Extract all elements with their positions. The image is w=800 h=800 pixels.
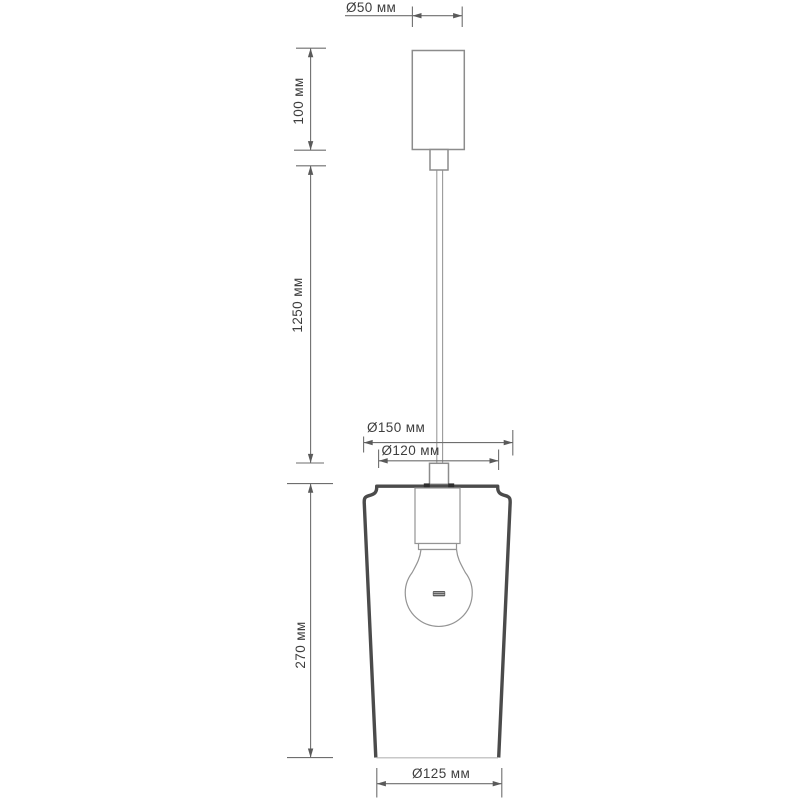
canopy-neck: [430, 150, 448, 171]
label-shade-bottom-diameter: Ø125 мм: [412, 767, 470, 781]
cable-connector: [430, 463, 449, 484]
arrow-left: [377, 781, 386, 786]
arrow-right: [490, 458, 499, 463]
drawing-geometry: [0, 0, 800, 800]
filament-mark: [433, 591, 445, 596]
arrow-right: [453, 13, 462, 18]
arrow-left: [379, 458, 388, 463]
arrow-left: [412, 13, 421, 18]
lamp-socket: [415, 488, 460, 544]
label-shade-height: 270 мм: [294, 621, 308, 668]
ceiling-canopy-outline: [412, 51, 464, 150]
arrow-right: [493, 781, 502, 786]
pendant-lamp-dimension-diagram: Ø50 мм 100 мм 1250 мм Ø150 мм Ø120 мм 27…: [0, 0, 800, 800]
label-cable-length: 1250 мм: [291, 277, 305, 332]
arrow-left: [364, 440, 373, 445]
label-shade-neck-diameter: Ø120 мм: [382, 444, 440, 458]
arrow-down: [308, 749, 313, 758]
label-shade-top-diameter: Ø150 мм: [367, 421, 425, 435]
label-canopy-height: 100 мм: [292, 77, 306, 124]
arrow-down: [308, 454, 313, 463]
arrow-right: [504, 440, 513, 445]
arrow-up: [308, 48, 313, 57]
arrow-up: [308, 484, 313, 493]
arrow-down: [308, 141, 313, 150]
label-canopy-diameter: Ø50 мм: [346, 1, 396, 15]
lamp-figure: [364, 51, 510, 758]
arrow-up: [308, 166, 313, 175]
lamp-socket-lip: [419, 544, 457, 550]
